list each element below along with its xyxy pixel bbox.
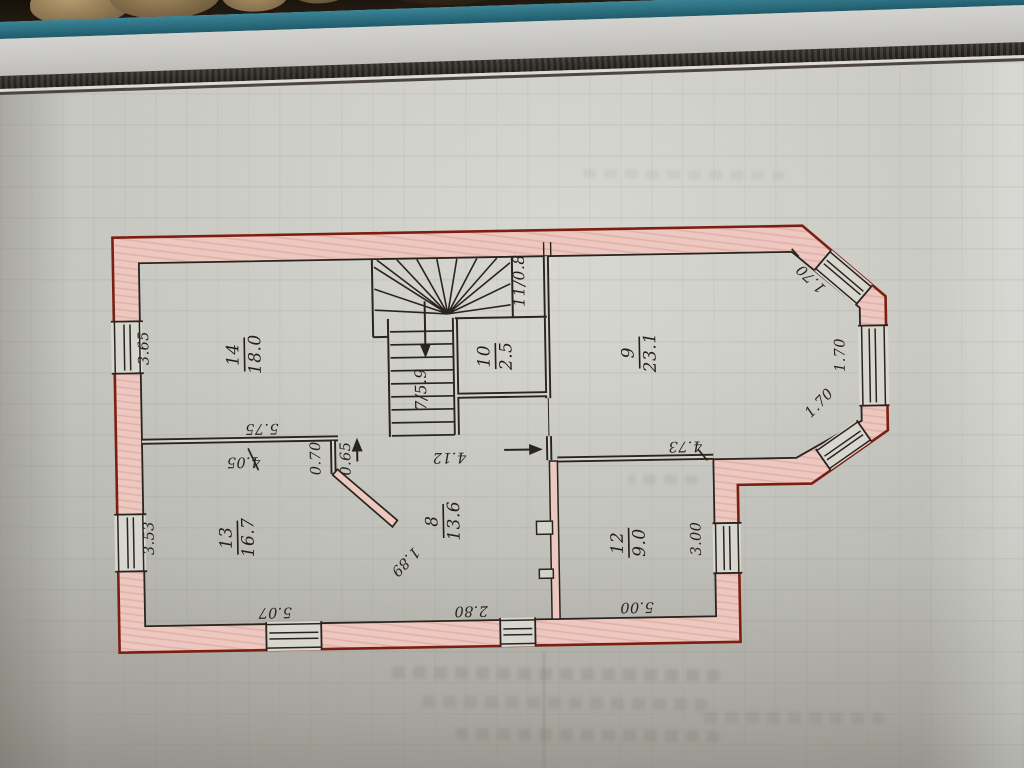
room-label-8: 8 13.6 (422, 501, 465, 542)
window-bay-middle (858, 325, 889, 406)
dim-room9-bottom-width: 4.73 (668, 437, 703, 454)
window-bottom-room13 (266, 621, 321, 651)
room-label-10: 10 2.5 (474, 341, 517, 371)
room-label-9: 9 23.1 (618, 332, 661, 374)
dim-door-a: 0.70 (308, 441, 325, 475)
dim-door-b: 0.65 (338, 442, 355, 476)
room-area: 16.7 (238, 517, 259, 557)
room-number: 9 (618, 347, 638, 359)
flue-pier (536, 521, 552, 534)
floor-plan-drawing: 14 18.0 13 16.7 8 13.6 12 9.0 9 23.1 10 … (0, 0, 1024, 768)
stair-winder-fan (374, 258, 511, 315)
stair-direction-arrow (421, 301, 430, 355)
room-label-13: 13 16.7 (216, 517, 259, 558)
dim-diagonal-wall: 1.89 (387, 544, 422, 579)
svg-text:7/5.9: 7/5.9 (412, 368, 431, 411)
room-number: 10 (474, 345, 494, 368)
room-number: 8 (422, 515, 442, 527)
dim-room12-height: 3.00 (688, 521, 705, 555)
door-arrow-right (504, 445, 540, 454)
dim-room8-top-width: 4.12 (432, 449, 467, 466)
dim-room12-bottom-width: 5.00 (620, 598, 654, 615)
dim-room13-height: 3.53 (141, 521, 158, 555)
room-number: 12 (608, 531, 628, 554)
room-label-7-stairs: 7/5.9 (412, 368, 431, 411)
room-area: 23.1 (640, 332, 661, 373)
dim-room13-bottom-width: 5.07 (258, 604, 293, 621)
dim-room13-top-width: 4.05 (226, 453, 261, 470)
dim-bay-window-bottom: 1.70 (802, 386, 837, 421)
room-label-14: 14 18.0 (223, 334, 266, 375)
room-area: 9.0 (630, 528, 650, 557)
svg-text:11/0.8: 11/0.8 (510, 254, 529, 307)
dim-bay-window-middle: 1.70 (832, 338, 849, 372)
room-area: 18.0 (245, 334, 266, 374)
room-label-11: 11/0.8 (510, 254, 529, 307)
dim-room14-height: 3.65 (136, 331, 153, 365)
wall-room8-room12 (549, 461, 560, 619)
room-number: 14 (223, 343, 243, 366)
room-area: 2.5 (496, 341, 517, 371)
dim-room14-width: 5.75 (245, 420, 279, 437)
room-label-12: 12 9.0 (608, 527, 651, 558)
room-area: 13.6 (444, 501, 465, 541)
room-number: 13 (216, 526, 236, 549)
dim-room8-bottom-width: 2.80 (454, 602, 489, 619)
diagonal-interior-wall (332, 468, 397, 528)
flue-pier (539, 569, 553, 578)
window-right-room12 (712, 523, 742, 573)
window-bottom-room8 (500, 617, 536, 647)
